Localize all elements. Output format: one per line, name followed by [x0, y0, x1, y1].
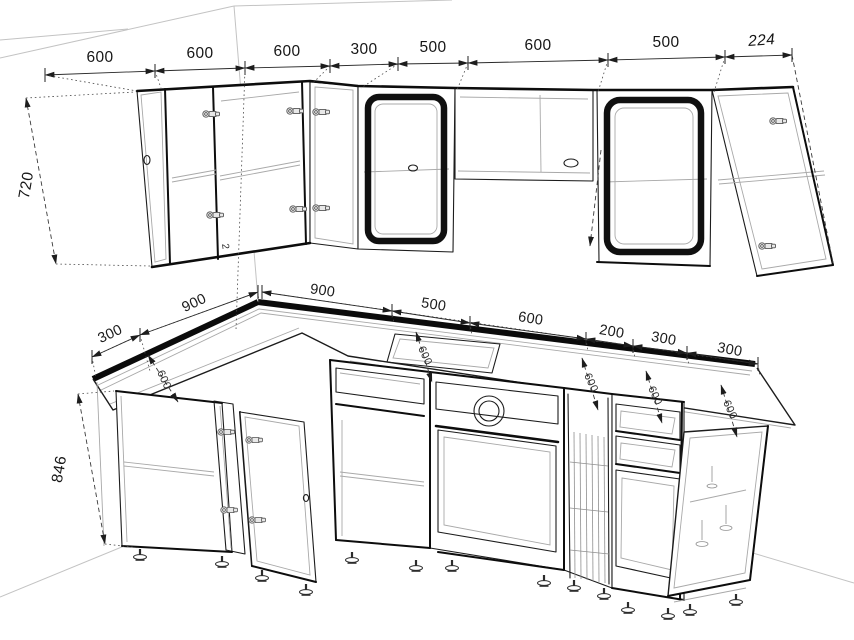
upper-left-run: [137, 81, 310, 267]
dim-label: 500: [652, 34, 679, 51]
hob-outline: [387, 334, 500, 373]
dim-label: 300: [350, 41, 377, 58]
dim-label: 600: [517, 309, 544, 329]
base-cabinets: [97, 360, 768, 619]
dim-label: 900: [180, 291, 210, 316]
dim-label: 600: [186, 45, 213, 62]
base-pullout-200: [564, 388, 612, 588]
dim-label: 900: [309, 281, 336, 300]
base-left-return: [97, 382, 245, 554]
base-oven-unit-600: [430, 372, 564, 570]
upper-cabinet-300: [310, 82, 358, 249]
kitchen-cad-drawing: 600 600 600 300 500 600 500 224 720 846: [0, 0, 854, 640]
base-angled-end-300: [668, 426, 768, 602]
dim-label-depth: 600: [415, 344, 434, 367]
dim-label: 500: [420, 295, 447, 315]
dim-label: 600: [524, 37, 551, 54]
dimension-counter-left: 300 900: [92, 285, 259, 378]
dim-label-height: 720: [16, 170, 37, 200]
dim-label: 500: [419, 39, 446, 56]
upper-cabinet-600-shallow: [455, 88, 593, 181]
dim-label: 600: [86, 49, 113, 66]
dim-label: 224: [747, 31, 776, 50]
base-sink-unit-500: [330, 360, 430, 548]
dim-label: 200: [598, 322, 625, 342]
upper-glass-cabinet-500-left: [358, 86, 455, 252]
dim-label-height: 846: [49, 454, 70, 484]
dim-label: 300: [96, 322, 126, 347]
dim-label: 300: [650, 329, 677, 349]
upper-angled-unit-224: [712, 87, 833, 276]
dimension-upper-height: 720: [16, 92, 150, 266]
dim-label-depth: 600: [154, 368, 173, 391]
base-corner-unit: [240, 412, 316, 582]
upper-glass-cabinet-500-right: [597, 90, 712, 266]
dim-label: 600: [273, 43, 300, 60]
